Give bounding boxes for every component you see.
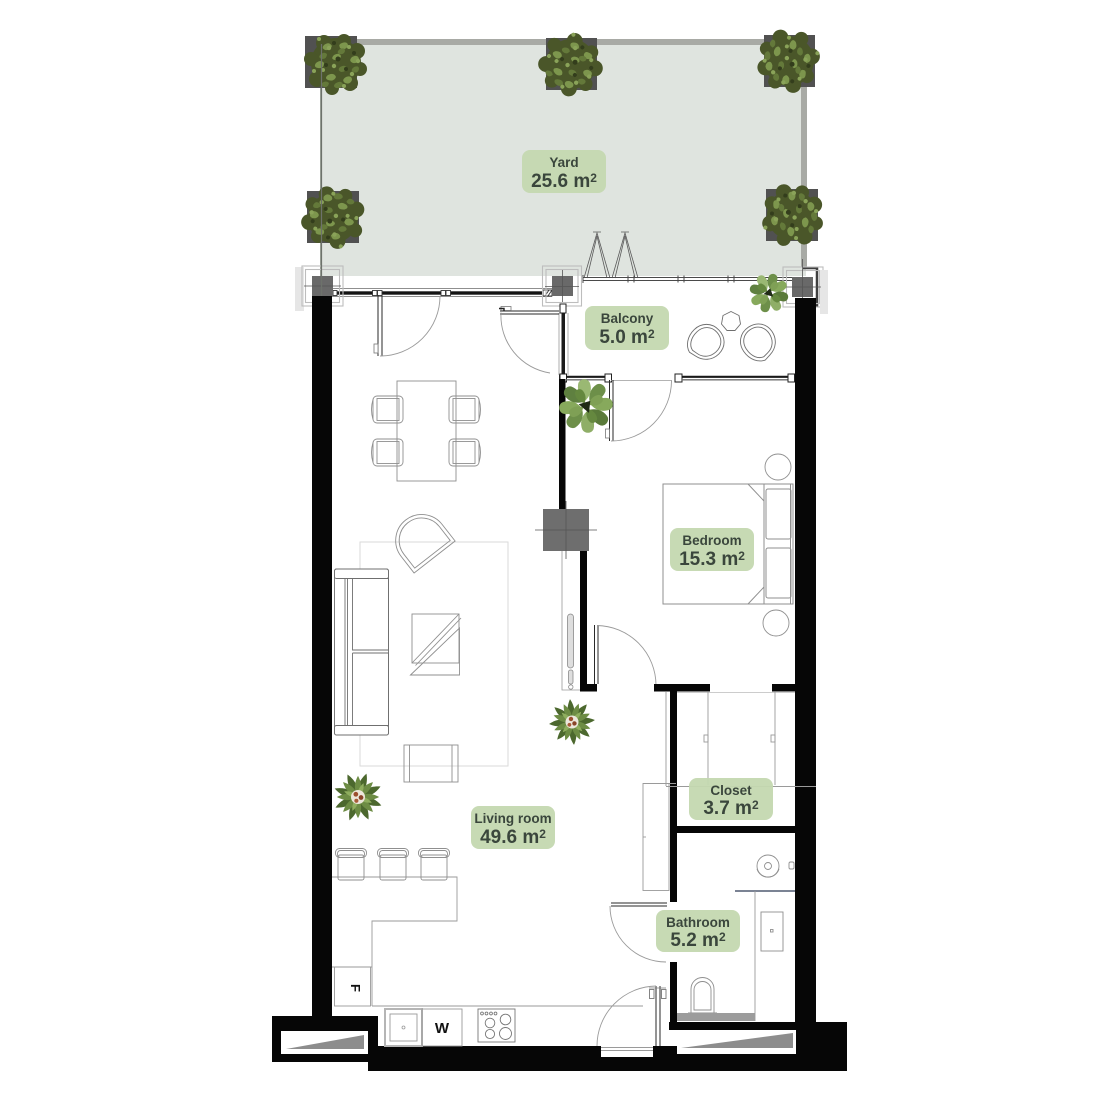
- svg-text:Yard: Yard: [549, 155, 578, 170]
- svg-text:15.3 m2: 15.3 m2: [679, 549, 745, 570]
- svg-text:49.6 m2: 49.6 m2: [480, 827, 546, 848]
- svg-text:Balcony: Balcony: [601, 311, 654, 326]
- svg-text:Bathroom: Bathroom: [666, 915, 730, 930]
- svg-text:Closet: Closet: [710, 783, 752, 798]
- svg-text:Bedroom: Bedroom: [682, 533, 741, 548]
- svg-text:Living room: Living room: [474, 811, 551, 826]
- svg-text:5.0 m2: 5.0 m2: [599, 327, 655, 348]
- svg-text:W: W: [435, 1020, 450, 1037]
- svg-text:5.2 m2: 5.2 m2: [670, 930, 726, 951]
- svg-text:3.7 m2: 3.7 m2: [703, 798, 759, 819]
- svg-text:F: F: [348, 984, 363, 992]
- svg-text:25.6 m2: 25.6 m2: [531, 171, 597, 192]
